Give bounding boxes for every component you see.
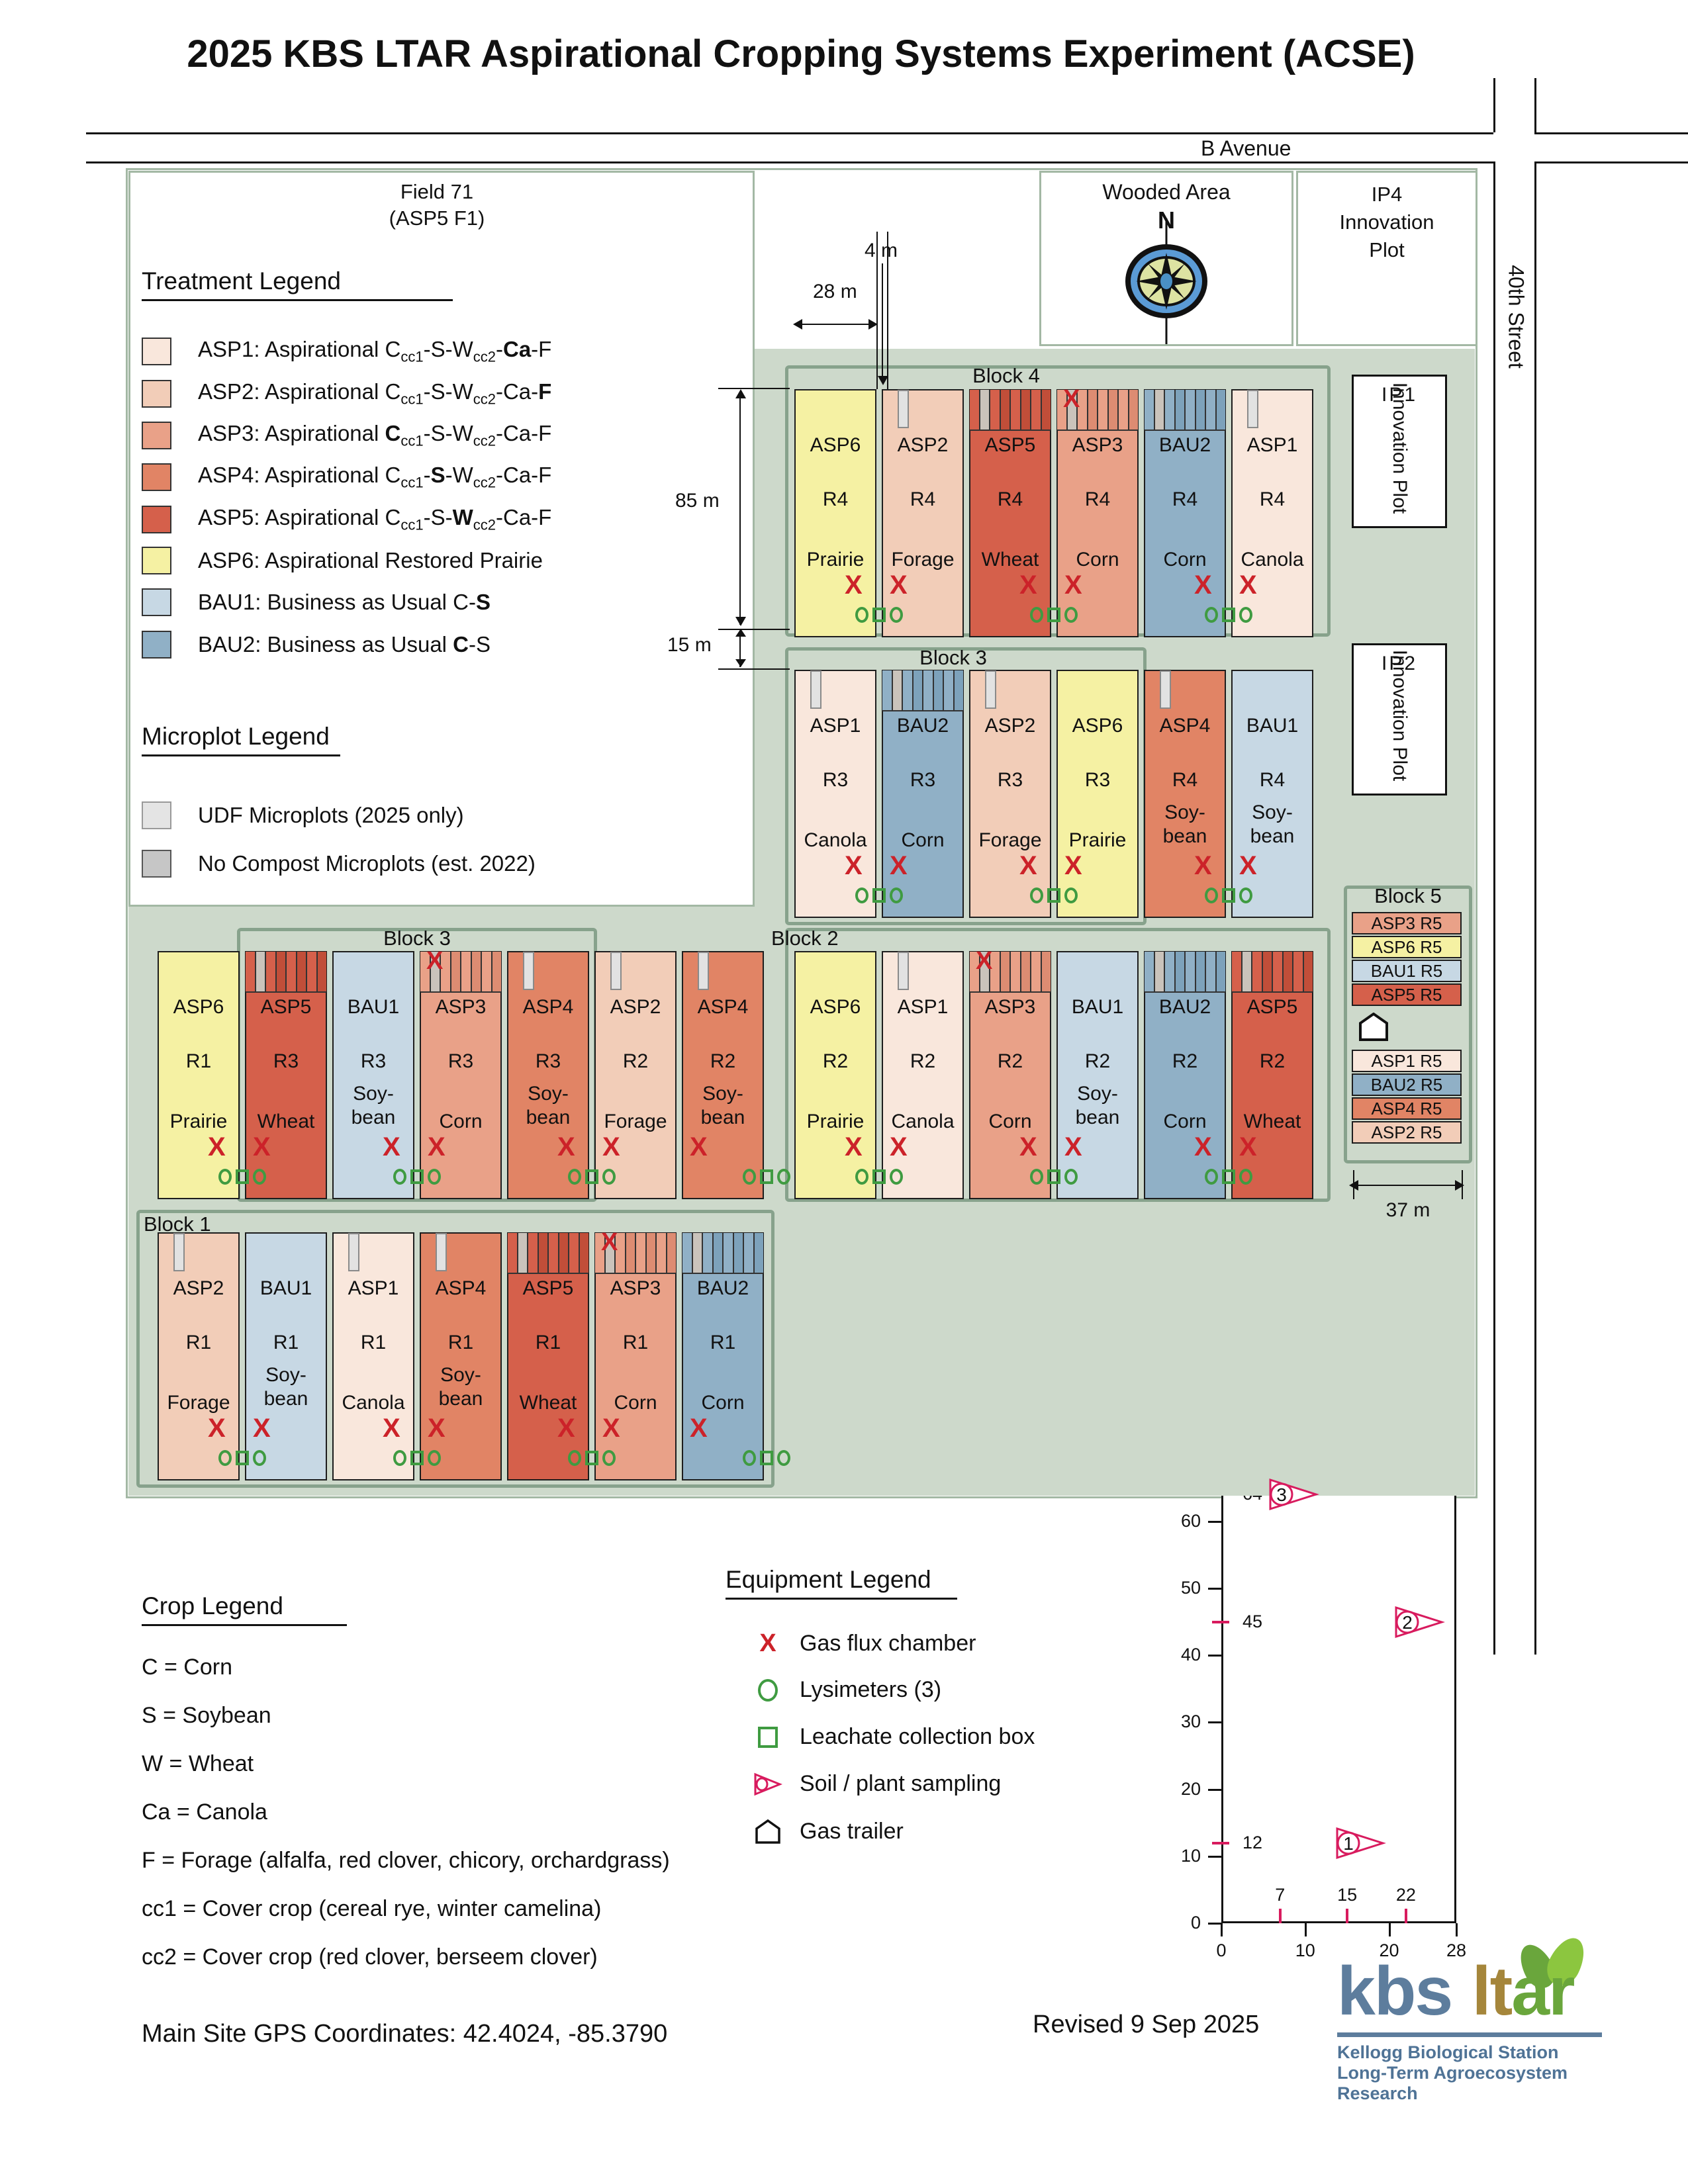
b-avenue-line-top bbox=[86, 132, 1493, 134]
sampling-x-tick bbox=[1305, 1923, 1307, 1936]
leachate-box-icon bbox=[1222, 1169, 1235, 1184]
gas-flux-x-icon: X bbox=[1239, 1132, 1257, 1162]
microplot-stripe-cell bbox=[1119, 390, 1129, 430]
crop-legend-item-4: F = Forage (alfalfa, red clover, chicory… bbox=[142, 1848, 670, 1874]
microplot-stripe-cell bbox=[647, 1233, 657, 1273]
treatment-legend-text-part: cc1 bbox=[400, 349, 423, 365]
sampling-y-tick-label: 0 bbox=[1158, 1913, 1201, 1933]
plot-crop-label: Prairie bbox=[793, 1110, 878, 1134]
leachate-box-icon bbox=[747, 1727, 789, 1748]
microplot-stripe-cell bbox=[1165, 952, 1176, 991]
sampling-station-1: 1 bbox=[1335, 1827, 1387, 1863]
gas-flux-x-icon: X bbox=[557, 1414, 575, 1443]
microplot-stripe-cell bbox=[482, 952, 492, 991]
page-title: 2025 KBS LTAR Aspirational Cropping Syst… bbox=[0, 32, 1602, 76]
crop-legend-item-0: C = Corn bbox=[142, 1655, 232, 1680]
lysimeter-icon bbox=[890, 887, 903, 903]
plot-crop-label: Canola bbox=[1230, 548, 1315, 572]
plot-rep-label: R4 bbox=[970, 488, 1050, 511]
microplot-stripes bbox=[1145, 390, 1225, 431]
equipment-legend-text: Gas trailer bbox=[800, 1819, 904, 1844]
plot-treatment-label: ASP2 bbox=[596, 996, 675, 1019]
treatment-legend-item-ASP5: ASP5: Aspirational Ccc1-S-Wcc2-Ca-F bbox=[142, 505, 551, 534]
microplot-stripe-cell bbox=[1011, 390, 1021, 430]
crop-legend-item-3: Ca = Canola bbox=[142, 1799, 267, 1825]
plot-rep-label: R4 bbox=[1233, 488, 1312, 511]
plot-ASP1-R1: ASP1R1CanolaX bbox=[332, 1232, 414, 1480]
dim-4m-line-left bbox=[876, 232, 878, 389]
lysimeter-icon bbox=[855, 887, 868, 903]
plot-crop-label: Soy- bbox=[1230, 801, 1315, 825]
microplot-stripes bbox=[970, 390, 1051, 431]
equipment-legend-text: Soil / plant sampling bbox=[800, 1771, 1001, 1797]
gas-flux-x-icon: X bbox=[890, 851, 908, 881]
plot-ASP1-R2: ASP1R2CanolaX bbox=[882, 951, 964, 1199]
leachate-box-icon bbox=[872, 608, 886, 622]
microplot-stripes bbox=[508, 1233, 588, 1274]
microplot-legend-text: UDF Microplots (2025 only) bbox=[198, 803, 464, 828]
plot-ASP6-R1: ASP6R1PrairieX bbox=[158, 951, 240, 1199]
lysimeter-icon bbox=[428, 1450, 441, 1466]
equipment-legend-text: Lysimeters (3) bbox=[800, 1677, 941, 1703]
treatment-legend-text-part: cc1 bbox=[400, 475, 423, 491]
plot-rep-label: R1 bbox=[421, 1332, 500, 1354]
lysimeter-leachate-group bbox=[1202, 1169, 1255, 1185]
leachate-box-icon bbox=[410, 1451, 424, 1465]
treatment-legend-item-BAU1: BAU1: Business as Usual C-S bbox=[142, 588, 491, 616]
microplot-stripe-cell bbox=[1031, 952, 1042, 991]
microplot-stripe-cell bbox=[266, 952, 277, 991]
microplot-stripe-cell bbox=[1165, 390, 1176, 430]
plot-crop-label: bean bbox=[244, 1387, 328, 1411]
gas-flux-x-icon: X bbox=[383, 1414, 400, 1443]
treatment-legend-text-part: ASP3: Aspirational bbox=[198, 421, 385, 445]
microplot-stripe-cell bbox=[1155, 390, 1166, 430]
microplot-stripe-cell bbox=[1273, 952, 1284, 991]
arrowhead bbox=[878, 376, 888, 385]
gas-flux-x-icon: X bbox=[557, 1132, 575, 1162]
treatment-legend-text-part: cc2 bbox=[473, 433, 496, 449]
lysimeter-icon bbox=[777, 1169, 790, 1185]
plot-treatment-label: BAU1 bbox=[334, 996, 413, 1019]
crop-legend-item-1: S = Soybean bbox=[142, 1703, 271, 1729]
microplot-stripe-cell bbox=[1011, 952, 1021, 991]
gas-flux-x-icon: X bbox=[1019, 1132, 1037, 1162]
microplot-stripe-cell bbox=[882, 670, 893, 710]
plot-rep-label: R3 bbox=[508, 1050, 588, 1073]
plot-ASP6-R2: ASP6R2PrairieX bbox=[794, 951, 876, 1199]
treatment-legend-text: ASP6: Aspirational Restored Prairie bbox=[198, 548, 543, 573]
microplot-stripes bbox=[882, 670, 963, 711]
plot-treatment-label: BAU1 bbox=[246, 1277, 326, 1300]
lysimeter-icon bbox=[428, 1169, 441, 1185]
microplot-stripe-cell bbox=[955, 670, 964, 710]
udf-microplot-tab bbox=[1160, 670, 1171, 709]
microplot-stripe-cell bbox=[657, 1233, 667, 1273]
plot-rep-label: R3 bbox=[796, 769, 875, 792]
treatment-swatch-ASP4 bbox=[142, 463, 171, 491]
treatment-swatch-ASP1 bbox=[142, 338, 171, 365]
plot-rep-label: R1 bbox=[334, 1332, 413, 1354]
plot-ASP4-R2: ASP4R2Soy-beanX bbox=[682, 951, 764, 1199]
treatment-legend-text-part: cc1 bbox=[400, 391, 423, 408]
equipment-legend-item-4: Gas trailer bbox=[747, 1819, 904, 1844]
microplot-stripe-cell bbox=[1001, 390, 1011, 430]
plot-crop-label: Corn bbox=[1143, 548, 1227, 572]
lysimeter-icon bbox=[393, 1169, 406, 1185]
sampling-y-tick-label: 30 bbox=[1158, 1711, 1201, 1732]
treatment-legend-underline bbox=[142, 299, 453, 301]
leachate-box-icon bbox=[1047, 1169, 1060, 1184]
microplot-stripe-cell bbox=[1232, 952, 1243, 991]
lysimeter-leachate-group bbox=[216, 1450, 269, 1466]
leachate-box-icon bbox=[236, 1451, 249, 1465]
lysimeter-icon bbox=[777, 1450, 790, 1466]
treatment-swatch-ASP3 bbox=[142, 422, 171, 449]
field-name: Field 71 bbox=[305, 180, 569, 204]
gas-flux-x-icon: X bbox=[208, 1132, 226, 1162]
treatment-legend-text: BAU1: Business as Usual C-S bbox=[198, 590, 491, 615]
soil-plant-sampling-icon bbox=[747, 1772, 789, 1796]
microplot-stripe-cell bbox=[1293, 952, 1304, 991]
microplot-stripe-cell bbox=[893, 670, 904, 710]
microplot-stripe-cell bbox=[1217, 390, 1226, 430]
plot-treatment-label: ASP3 bbox=[596, 1277, 675, 1300]
lysimeter-leachate-group bbox=[1027, 1169, 1080, 1185]
plot-crop-label: Prairie bbox=[156, 1110, 241, 1134]
lysimeter-icon bbox=[602, 1169, 616, 1185]
ip1-label: Innovation Plot bbox=[1388, 375, 1411, 521]
plot-crop-label: Prairie bbox=[793, 548, 878, 572]
microplot-stripe-cell bbox=[318, 952, 327, 991]
plot-crop-label: Soy- bbox=[331, 1082, 416, 1106]
treatment-legend-text-part: cc1 bbox=[400, 517, 423, 533]
microplot-stripe-cell bbox=[1001, 952, 1011, 991]
plot-crop-label: Prairie bbox=[1055, 829, 1140, 852]
microplot-stripe-cell bbox=[1206, 952, 1217, 991]
lysimeter-icon bbox=[743, 1169, 756, 1185]
dim-ext-line bbox=[718, 668, 790, 670]
udf-microplot-tab bbox=[348, 1233, 359, 1271]
plot-rep-label: R4 bbox=[1145, 488, 1225, 511]
plot-BAU1-R2: BAU1R2Soy-beanX bbox=[1056, 951, 1139, 1199]
plot-rep-label: R4 bbox=[883, 488, 962, 511]
treatment-legend-text-part: cc2 bbox=[473, 349, 496, 365]
gas-flux-x-icon: X bbox=[1239, 570, 1257, 600]
treatment-swatch-ASP5 bbox=[142, 506, 171, 533]
dim-37m-arrow bbox=[1354, 1185, 1459, 1186]
gas-flux-x-icon: X bbox=[601, 1228, 618, 1257]
plot-treatment-label: ASP2 bbox=[883, 434, 962, 457]
lysimeter-icon bbox=[1064, 887, 1078, 903]
sampling-y-tick bbox=[1208, 1721, 1221, 1723]
plot-crop-label: Corn bbox=[593, 1391, 678, 1415]
microplot-legend-item-0: UDF Microplots (2025 only) bbox=[142, 801, 464, 829]
b-avenue-line-bottom2 bbox=[1534, 161, 1688, 163]
lysimeter-leachate-group bbox=[391, 1450, 444, 1466]
treatment-legend-item-ASP2: ASP2: Aspirational Ccc1-S-Wcc2-Ca-F bbox=[142, 379, 551, 408]
sampling-x-tick bbox=[1389, 1923, 1391, 1936]
treatment-legend-text-part: -S-W bbox=[424, 421, 473, 445]
arrowhead bbox=[735, 659, 746, 667]
plot-treatment-label: BAU1 bbox=[1233, 715, 1312, 737]
gas-flux-x-icon: X bbox=[1063, 385, 1080, 414]
microplot-stripe-cell bbox=[970, 390, 980, 430]
plot-treatment-label: BAU2 bbox=[883, 715, 962, 737]
plot-ASP5-R4: ASP5R4WheatX bbox=[969, 389, 1051, 637]
microplot-stripe-cell bbox=[1196, 952, 1207, 991]
block2-label: Block 2 bbox=[771, 927, 839, 950]
microplot-stripe-cell bbox=[1098, 390, 1109, 430]
treatment-legend-text-part: BAU2: Business as Usual bbox=[198, 632, 453, 657]
plot-treatment-label: ASP2 bbox=[970, 715, 1050, 737]
gas-flux-x-icon: X bbox=[1239, 851, 1257, 881]
plot-rep-label: R1 bbox=[159, 1332, 238, 1354]
street-line-left bbox=[1493, 161, 1495, 1655]
treatment-legend-text-part: -S-W bbox=[424, 337, 473, 361]
microplot-stripe-cell bbox=[1186, 952, 1196, 991]
treatment-legend-text: ASP1: Aspirational Ccc1-S-Wcc2-Ca-F bbox=[198, 337, 551, 366]
plot-rep-label: R3 bbox=[970, 769, 1050, 792]
udf-microplot-tab bbox=[810, 670, 821, 709]
microplot-stripe-cell bbox=[980, 390, 991, 430]
b-avenue-label: B Avenue bbox=[1192, 136, 1300, 161]
lysimeter-icon bbox=[1064, 1169, 1078, 1185]
plot-rep-label: R4 bbox=[796, 488, 875, 511]
plot-crop-label: Canola bbox=[331, 1391, 416, 1415]
treatment-swatch-ASP2 bbox=[142, 380, 171, 408]
microplot-stripe-cell bbox=[682, 1233, 693, 1273]
microplot-stripe-cell bbox=[1206, 390, 1217, 430]
microplot-stripe-cell bbox=[307, 952, 318, 991]
lysimeter-icon bbox=[218, 1450, 232, 1466]
svg-text:3: 3 bbox=[1276, 1484, 1287, 1505]
plot-ASP5-R3: ASP5R3WheatX bbox=[245, 951, 327, 1199]
plot-rep-label: R4 bbox=[1233, 769, 1312, 792]
treatment-legend-item-ASP3: ASP3: Aspirational Ccc1-S-Wcc2-Ca-F bbox=[142, 421, 551, 450]
plot-treatment-label: BAU2 bbox=[1145, 434, 1225, 457]
treatment-legend-item-ASP1: ASP1: Aspirational Ccc1-S-Wcc2-Ca-F bbox=[142, 337, 551, 366]
ip4-line1: IP4 bbox=[1296, 183, 1477, 206]
lysimeter-icon bbox=[1239, 887, 1252, 903]
microplot-stripe-cell bbox=[755, 1233, 764, 1273]
leachate-box-icon bbox=[236, 1169, 249, 1184]
plot-ASP1-R4: ASP1R4CanolaX bbox=[1231, 389, 1313, 637]
microplot-stripes bbox=[682, 1233, 763, 1274]
lysimeter-icon bbox=[1205, 1169, 1218, 1185]
plot-rep-label: R2 bbox=[1233, 1050, 1312, 1073]
treatment-legend-item-ASP6: ASP6: Aspirational Restored Prairie bbox=[142, 547, 543, 574]
microplot-stripe-cell bbox=[1155, 952, 1166, 991]
arrowhead bbox=[735, 629, 746, 637]
dim-28m-label: 28 m bbox=[809, 281, 861, 303]
leachate-box-icon bbox=[1222, 608, 1235, 622]
gas-flux-x-icon: X bbox=[253, 1132, 271, 1162]
udf-microplot-tab bbox=[985, 670, 996, 709]
equipment-legend-text: Gas flux chamber bbox=[800, 1631, 976, 1657]
udf-microplot-tab bbox=[898, 390, 909, 428]
lysimeter-leachate-group bbox=[853, 607, 906, 623]
sampling-y-tick-label: 10 bbox=[1158, 1846, 1201, 1866]
microplot-stripe-cell bbox=[1042, 952, 1051, 991]
plot-rep-label: R3 bbox=[1058, 769, 1137, 792]
plot-treatment-label: ASP5 bbox=[246, 996, 326, 1019]
microplot-stripe-cell bbox=[1252, 952, 1263, 991]
plot-treatment-label: BAU2 bbox=[683, 1277, 763, 1300]
microplot-stripe-cell bbox=[451, 952, 462, 991]
plot-crop-label: Corn bbox=[1055, 548, 1140, 572]
plot-ASP6-R4: ASP6R4PrairieX bbox=[794, 389, 876, 637]
block5-label: Block 5 bbox=[1342, 884, 1474, 908]
microplot-stripe-cell bbox=[1031, 390, 1042, 430]
plot-BAU2-R1: BAU2R1CornX bbox=[682, 1232, 764, 1480]
lysimeter-icon bbox=[568, 1169, 581, 1185]
plot-crop-label: Soy- bbox=[1055, 1082, 1140, 1106]
treatment-legend-text-part: ASP2: Aspirational C bbox=[198, 379, 400, 404]
plot-BAU2-R4: BAU2R4CornX bbox=[1144, 389, 1226, 637]
microplot-stripes bbox=[1232, 952, 1313, 993]
block5-strip-BAU1: BAU1 R5 bbox=[1352, 960, 1462, 982]
plot-crop-label: bean bbox=[506, 1106, 590, 1130]
plot-crop-label: Soy- bbox=[506, 1082, 590, 1106]
crop-legend-heading: Crop Legend bbox=[142, 1592, 283, 1620]
lysimeter-icon bbox=[1030, 1169, 1043, 1185]
plot-treatment-label: ASP4 bbox=[421, 1277, 500, 1300]
sampling-x-station-tick bbox=[1405, 1909, 1407, 1923]
treatment-legend-text-part: cc2 bbox=[473, 517, 496, 533]
treatment-legend-text-part: - bbox=[424, 463, 431, 487]
gas-flux-x-icon: X bbox=[428, 1414, 445, 1443]
microplot-swatch bbox=[142, 850, 171, 878]
plot-rep-label: R2 bbox=[1058, 1050, 1137, 1073]
plot-treatment-label: ASP3 bbox=[421, 996, 500, 1019]
compass-icon bbox=[1120, 218, 1213, 347]
arrowhead bbox=[793, 319, 802, 330]
lysimeter-icon bbox=[393, 1450, 406, 1466]
lysimeter-icon bbox=[1239, 607, 1252, 623]
plot-crop-label: Wheat bbox=[1230, 1110, 1315, 1134]
ip4-line3: Plot bbox=[1296, 238, 1477, 262]
treatment-legend-text-part: Ca bbox=[503, 337, 531, 361]
plot-rep-label: R2 bbox=[970, 1050, 1050, 1073]
plot-crop-label: Canola bbox=[793, 829, 878, 852]
sampling-y-station-label: 12 bbox=[1243, 1833, 1262, 1853]
treatment-legend-text: ASP4: Aspirational Ccc1-S-Wcc2-Ca-F bbox=[198, 463, 551, 492]
lysimeter-icon bbox=[602, 1450, 616, 1466]
lysimeter-icon bbox=[747, 1679, 789, 1702]
lysimeter-icon bbox=[218, 1169, 232, 1185]
plot-treatment-label: ASP4 bbox=[1145, 715, 1225, 737]
plot-rep-label: R1 bbox=[683, 1332, 763, 1354]
block5-strip-ASP5: ASP5 R5 bbox=[1352, 983, 1462, 1006]
plot-rep-label: R2 bbox=[596, 1050, 675, 1073]
sampling-x-station-label: 22 bbox=[1386, 1885, 1426, 1905]
plot-rep-label: R2 bbox=[883, 1050, 962, 1073]
plot-ASP4-R4: ASP4R4Soy-beanX bbox=[1144, 670, 1226, 918]
lysimeter-leachate-group bbox=[1202, 607, 1255, 623]
microplot-stripe-cell bbox=[1021, 390, 1032, 430]
gas-flux-x-icon: X bbox=[1064, 851, 1082, 881]
sampling-x-tick bbox=[1456, 1923, 1458, 1936]
microplot-stripe-cell bbox=[549, 1233, 559, 1273]
lysimeter-icon bbox=[568, 1450, 581, 1466]
street-label: 40th Street bbox=[1504, 257, 1528, 377]
treatment-legend-text: ASP2: Aspirational Ccc1-S-Wcc2-Ca-F bbox=[198, 379, 551, 408]
leachate-box-icon bbox=[872, 1169, 886, 1184]
sampling-y-tick-label: 20 bbox=[1158, 1779, 1201, 1799]
plot-crop-label: Forage bbox=[156, 1391, 241, 1415]
treatment-legend-text-part: F bbox=[538, 379, 551, 404]
gas-flux-x-icon: X bbox=[890, 1132, 908, 1162]
microplot-stripe-cell bbox=[1088, 390, 1099, 430]
lysimeter-icon bbox=[1239, 1169, 1252, 1185]
microplot-stripe-cell bbox=[539, 1233, 549, 1273]
treatment-legend-text-part: -S-W bbox=[424, 379, 473, 404]
plot-treatment-label: ASP6 bbox=[1058, 715, 1137, 737]
crop-legend-underline bbox=[142, 1624, 347, 1626]
microplot-legend-underline bbox=[142, 754, 340, 756]
sampling-x-station-tick bbox=[1346, 1909, 1348, 1923]
treatment-legend-text-part: -S- bbox=[424, 505, 453, 529]
plot-rep-label: R4 bbox=[1145, 769, 1225, 792]
gas-flux-x-icon: X bbox=[1194, 851, 1212, 881]
sampling-y-station-tick bbox=[1212, 1621, 1229, 1623]
treatment-legend-item-ASP4: ASP4: Aspirational Ccc1-S-Wcc2-Ca-F bbox=[142, 463, 551, 492]
dim-ext-line bbox=[718, 629, 790, 630]
gas-trailer-icon bbox=[1358, 1013, 1389, 1045]
microplot-stripe-cell bbox=[1186, 390, 1196, 430]
logo-rule bbox=[1337, 2032, 1602, 2037]
microplot-stripe-cell bbox=[693, 1233, 704, 1273]
treatment-legend-text-part: S bbox=[431, 463, 445, 487]
lysimeter-leachate-group bbox=[391, 1169, 444, 1185]
plot-ASP3-R3: XASP3R3CornX bbox=[420, 951, 502, 1199]
microplot-stripe-cell bbox=[914, 670, 924, 710]
microplot-stripe-cell bbox=[246, 952, 256, 991]
microplot-stripe-cell bbox=[626, 1233, 637, 1273]
sampling-x-tick-label: 10 bbox=[1286, 1940, 1325, 1961]
plot-crop-label: bean bbox=[418, 1387, 503, 1411]
plot-crop-label: bean bbox=[1230, 825, 1315, 848]
acse-map-page: 2025 KBS LTAR Aspirational Cropping Syst… bbox=[0, 0, 1688, 2184]
treatment-legend-text-part: ASP6: Aspirational Restored Prairie bbox=[198, 548, 543, 572]
lysimeter-icon bbox=[1064, 607, 1078, 623]
plot-treatment-label: ASP2 bbox=[159, 1277, 238, 1300]
lysimeter-leachate-group bbox=[1027, 607, 1080, 623]
leachate-box-icon bbox=[410, 1169, 424, 1184]
microplot-stripe-cell bbox=[472, 952, 483, 991]
plot-crop-label: bean bbox=[331, 1106, 416, 1130]
microplot-stripe-cell bbox=[923, 670, 934, 710]
plot-rep-label: R2 bbox=[1145, 1050, 1225, 1073]
svg-text:1: 1 bbox=[1343, 1833, 1354, 1854]
lysimeter-icon bbox=[1030, 607, 1043, 623]
plot-treatment-label: ASP1 bbox=[883, 996, 962, 1019]
microplot-stripe-cell bbox=[1284, 952, 1294, 991]
sampling-y-tick bbox=[1208, 1655, 1221, 1657]
gas-flux-x-icon: X bbox=[1064, 570, 1082, 600]
microplot-stripe-cell bbox=[492, 952, 502, 991]
microplot-stripe-cell bbox=[569, 1233, 580, 1273]
microplot-stripe-cell bbox=[903, 670, 914, 710]
lysimeter-icon bbox=[890, 1169, 903, 1185]
plot-crop-label: Soy- bbox=[244, 1363, 328, 1387]
plot-ASP3-R4: XASP3R4CornX bbox=[1056, 389, 1139, 637]
plot-crop-label: Soy- bbox=[418, 1363, 503, 1387]
lysimeter-leachate-group bbox=[1027, 887, 1080, 903]
treatment-legend-item-BAU2: BAU2: Business as Usual C-S bbox=[142, 631, 491, 659]
treatment-legend-text-part: ASP4: Aspirational C bbox=[198, 463, 400, 487]
